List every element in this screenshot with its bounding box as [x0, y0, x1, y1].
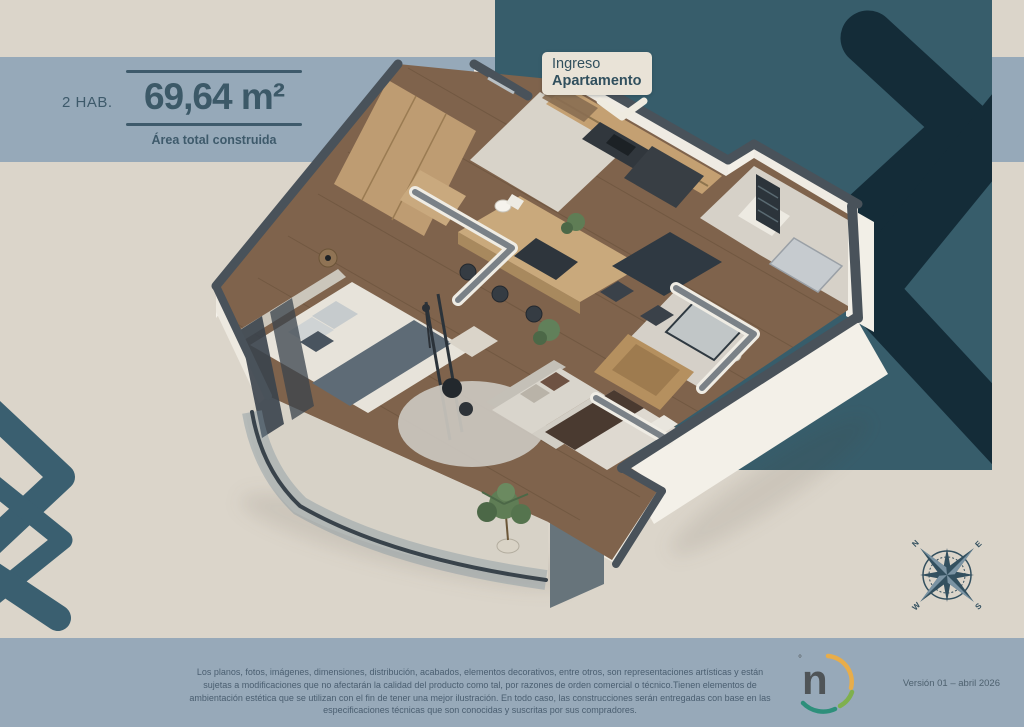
entrance-callout-line1: Ingreso	[552, 56, 642, 73]
area-caption: Área total construida	[126, 133, 302, 147]
bed	[250, 282, 470, 413]
window-panel	[240, 316, 284, 438]
entrance-callout: Ingreso Apartamento	[542, 52, 652, 130]
logo-letter: n	[802, 656, 828, 703]
entrance-callout-line2: Apartamento	[552, 73, 642, 90]
steel-chevron-decoration	[0, 380, 130, 650]
compass-rose-icon: N E S W	[898, 526, 996, 624]
window-panel	[270, 298, 314, 420]
headboard	[236, 269, 346, 340]
logo-arc-teal	[803, 703, 835, 712]
area-block: 69,64 m² Área total construida	[126, 70, 302, 147]
glass-partition	[438, 294, 462, 432]
bar-stool	[460, 264, 476, 280]
version-label: Versión 01 – abril 2026	[903, 678, 1000, 689]
dresser	[400, 170, 466, 226]
arrow-down-icon	[542, 95, 652, 125]
pillow	[312, 301, 358, 329]
rule-bottom	[126, 123, 302, 126]
pillow	[288, 317, 334, 345]
rooms-label: 2 HAB.	[62, 94, 113, 111]
entrance-callout-box: Ingreso Apartamento	[542, 52, 652, 95]
logo-arc-yellow	[828, 656, 852, 688]
compass-north-label: N	[910, 538, 921, 549]
compass-south-label: S	[973, 601, 984, 612]
accent-pillow	[300, 331, 334, 352]
compass-east-label: E	[973, 539, 984, 550]
bedside-table	[319, 249, 337, 267]
area-value: 69,64 m²	[126, 73, 302, 123]
floor-lamp	[426, 310, 430, 348]
building-shadow	[234, 475, 576, 608]
brand-logo: ° n	[788, 644, 862, 718]
glass-partition	[426, 302, 450, 440]
palm-plant	[489, 489, 519, 519]
coffee-table	[442, 378, 462, 398]
armchair	[448, 326, 498, 357]
footer-band: Los planos, fotos, imágenes, dimensiones…	[0, 638, 1024, 727]
coffee-table	[459, 402, 473, 416]
logo-arc-green	[840, 692, 852, 706]
disclaimer-text: Los planos, fotos, imágenes, dimensiones…	[183, 666, 777, 717]
compass-west-label: W	[910, 600, 922, 612]
bed-throw	[312, 320, 452, 406]
